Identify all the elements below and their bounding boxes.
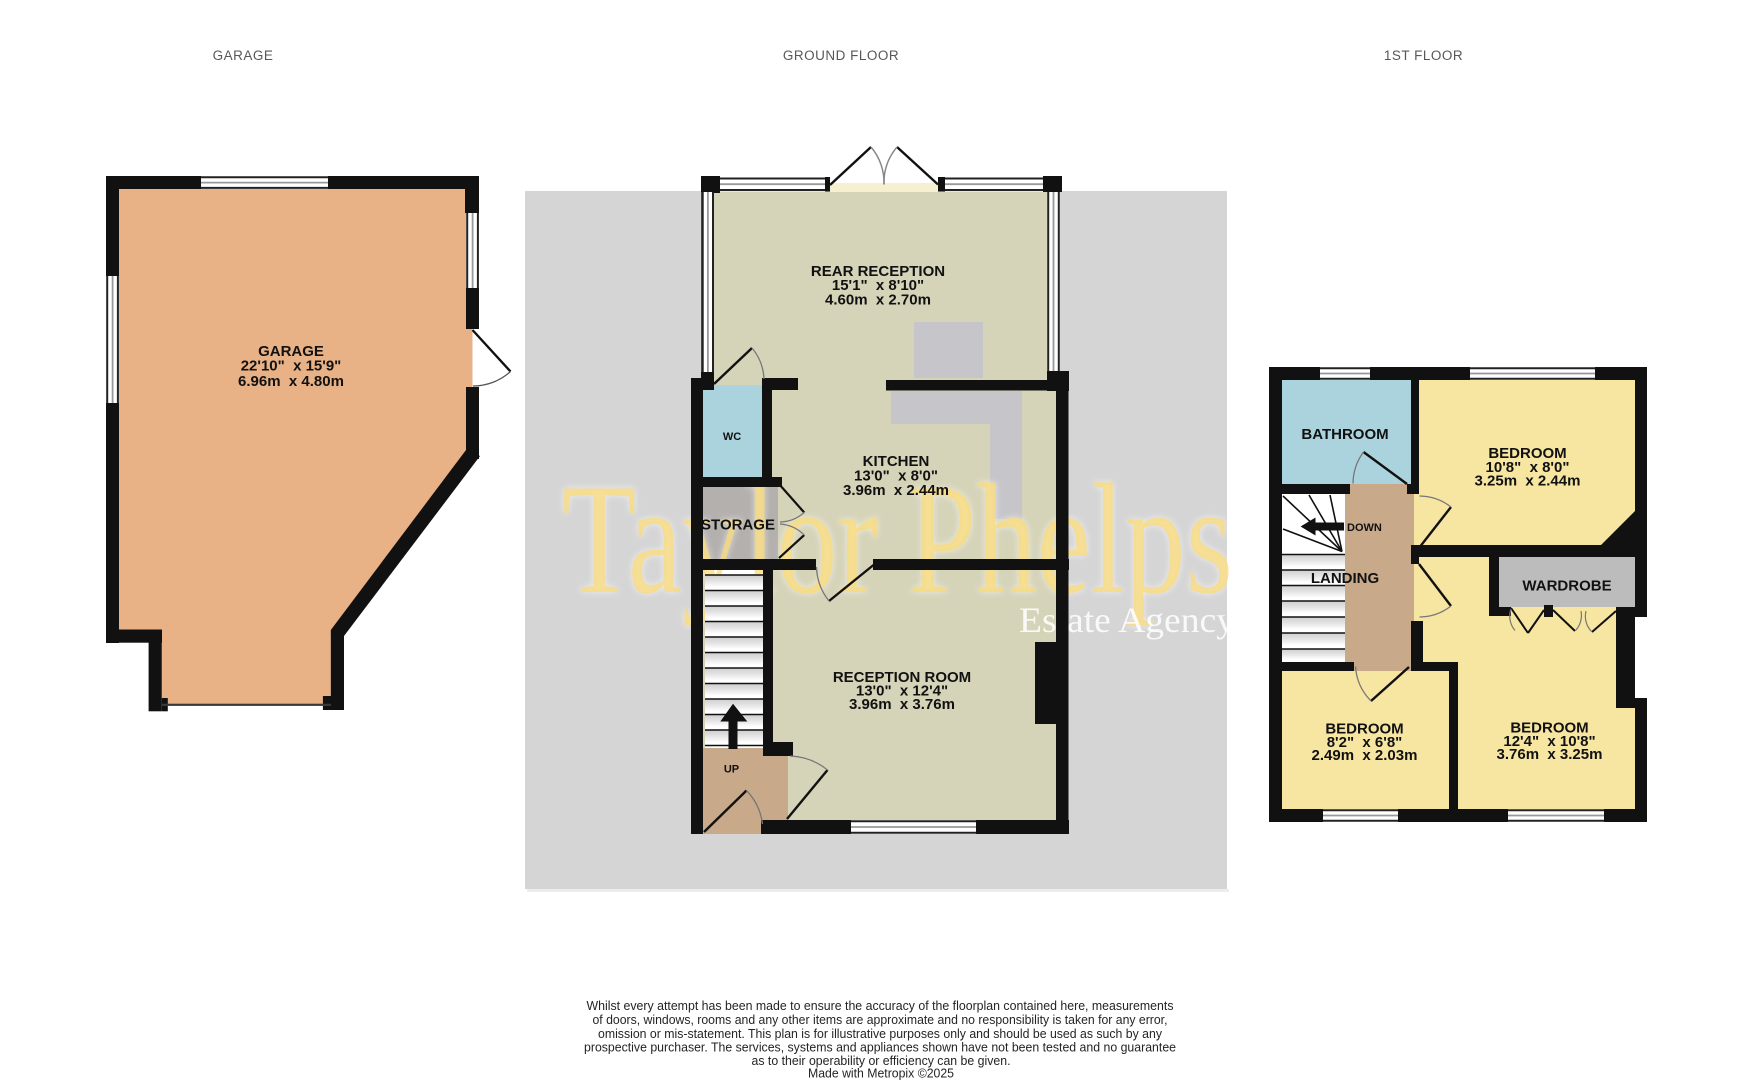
svg-text:WARDROBE: WARDROBE [1522, 578, 1611, 595]
svg-text:UP: UP [724, 764, 739, 776]
svg-text:3.96m x 3.76m: 3.96m x 3.76m [849, 696, 955, 713]
svg-text:Estate Agency: Estate Agency [1019, 600, 1235, 640]
svg-text:6.96m x 4.80m: 6.96m x 4.80m [238, 373, 344, 390]
svg-text:DOWN: DOWN [1347, 522, 1382, 534]
svg-text:of doors, windows, rooms and a: of doors, windows, rooms and any other i… [593, 1012, 1168, 1027]
svg-text:3.96m x 2.44m: 3.96m x 2.44m [843, 482, 949, 499]
svg-text:GARAGE: GARAGE [213, 48, 274, 63]
svg-text:omission or mis-statement. Thi: omission or mis-statement. This plan is … [598, 1026, 1162, 1041]
svg-text:LANDING: LANDING [1311, 570, 1379, 587]
svg-text:3.25m x 2.44m: 3.25m x 2.44m [1475, 473, 1581, 490]
svg-text:STORAGE: STORAGE [701, 517, 775, 534]
svg-text:BATHROOM: BATHROOM [1301, 426, 1388, 443]
svg-text:1ST FLOOR: 1ST FLOOR [1384, 48, 1463, 63]
svg-text:4.60m x 2.70m: 4.60m x 2.70m [825, 292, 931, 309]
svg-text:Made with Metropix ©2025: Made with Metropix ©2025 [808, 1066, 954, 1080]
svg-text:GROUND FLOOR: GROUND FLOOR [783, 48, 899, 63]
svg-text:Whilst every attempt has been: Whilst every attempt has been made to en… [587, 998, 1174, 1013]
svg-text:WC: WC [723, 431, 741, 443]
svg-text:2.49m x 2.03m: 2.49m x 2.03m [1312, 747, 1418, 764]
svg-text:3.76m x 3.25m: 3.76m x 3.25m [1497, 746, 1603, 763]
svg-text:22'10" x 15'9": 22'10" x 15'9" [241, 358, 342, 375]
